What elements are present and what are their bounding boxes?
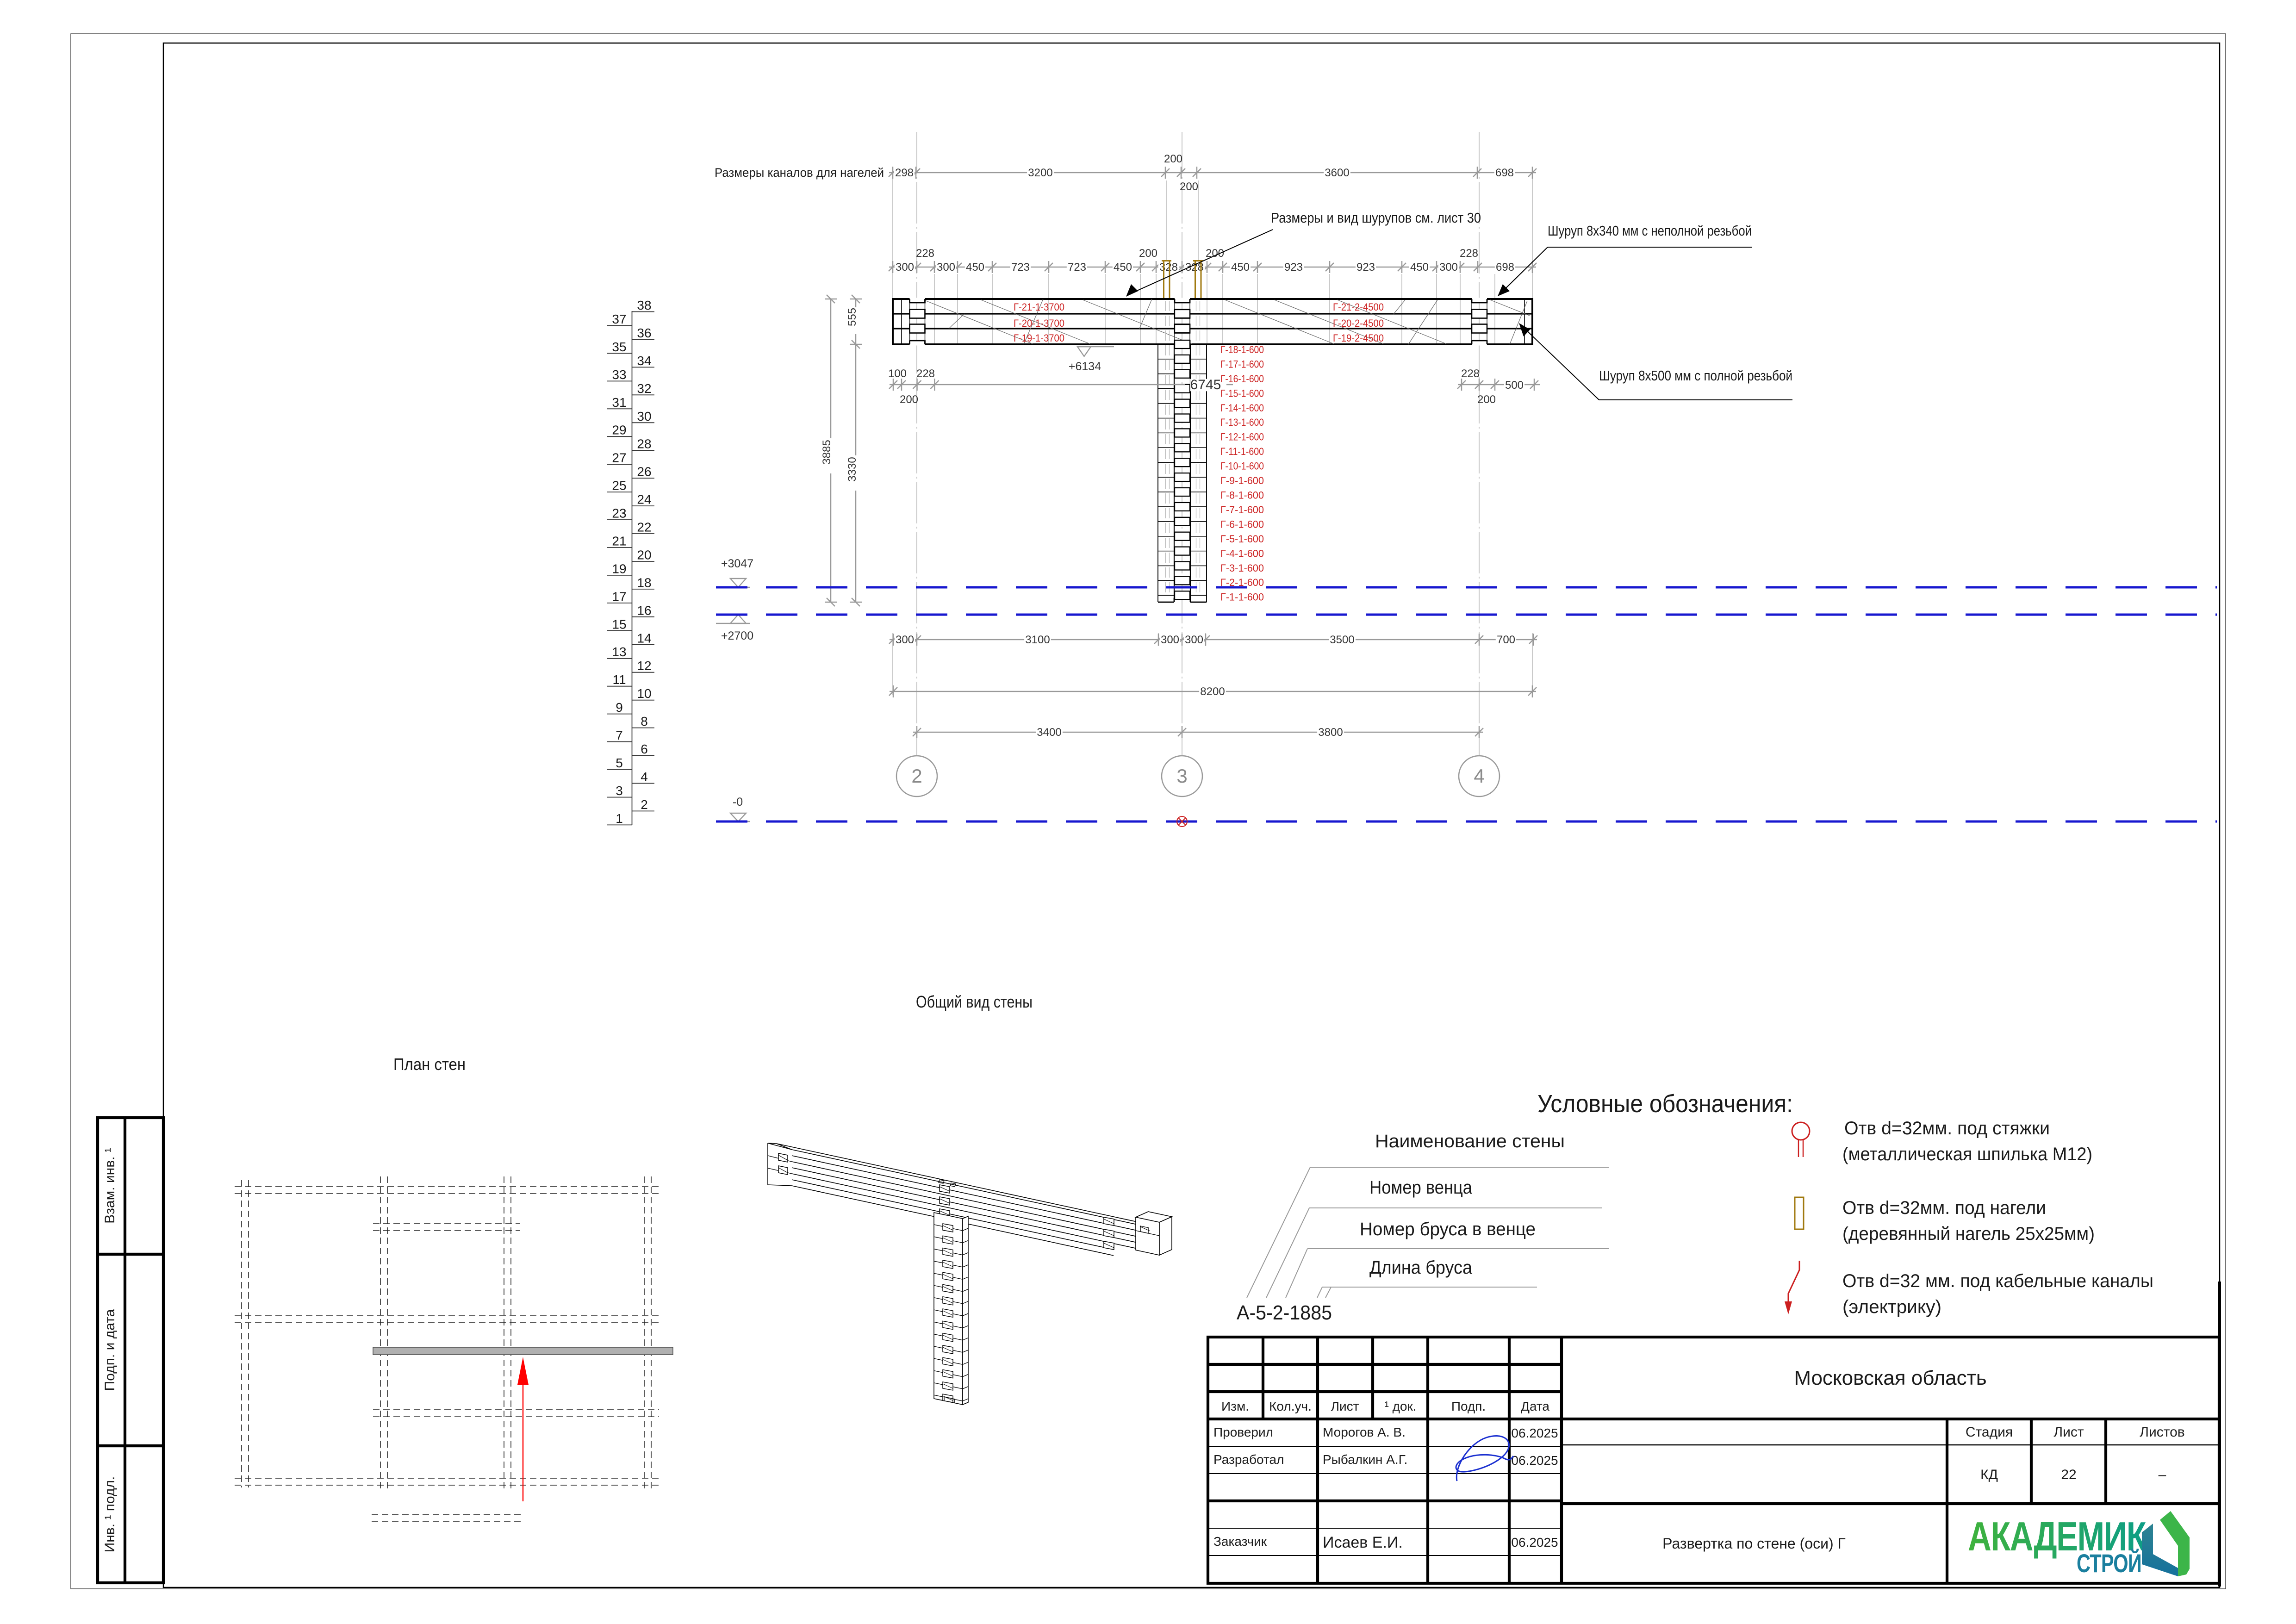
svg-text:Подп.: Подп. (1451, 1399, 1486, 1413)
svg-text:21: 21 (612, 534, 626, 548)
svg-text:2: 2 (911, 765, 922, 787)
svg-text:Наименование стены: Наименование стены (1375, 1131, 1565, 1151)
svg-text:План стен: План стен (393, 1055, 466, 1074)
svg-text:Общий вид стены: Общий вид стены (916, 992, 1033, 1011)
svg-text:Отв d=32 мм. под кабельные кан: Отв d=32 мм. под кабельные каналы (1842, 1271, 2153, 1291)
svg-text:700: 700 (1497, 634, 1515, 646)
svg-text:Номер бруса в венце: Номер бруса в венце (1360, 1219, 1536, 1239)
svg-text:Г-6-1-600: Г-6-1-600 (1220, 518, 1264, 530)
svg-text:450: 450 (966, 261, 984, 274)
svg-text:Отв d=32мм. под стяжки: Отв d=32мм. под стяжки (1844, 1118, 2050, 1139)
svg-text:6: 6 (641, 742, 648, 756)
svg-text:698: 698 (1495, 167, 1514, 179)
svg-text:228: 228 (916, 247, 934, 260)
svg-text:34: 34 (637, 354, 651, 368)
svg-text:723: 723 (1011, 261, 1030, 274)
svg-text:7: 7 (616, 728, 623, 742)
svg-text:+3047: +3047 (721, 557, 753, 570)
svg-text:298: 298 (895, 167, 914, 179)
svg-text:14: 14 (637, 631, 651, 645)
svg-text:Г-14-1-600: Г-14-1-600 (1220, 402, 1264, 414)
svg-text:4: 4 (1474, 765, 1484, 787)
svg-text:Исаев Е.И.: Исаев Е.И. (1323, 1534, 1403, 1551)
svg-text:3100: 3100 (1025, 634, 1050, 646)
svg-text:3400: 3400 (1037, 726, 1061, 739)
svg-text:Инв. ¹ подл.: Инв. ¹ подл. (102, 1476, 118, 1553)
svg-text:Размеры каналов для нагелей: Размеры каналов для нагелей (715, 166, 884, 180)
svg-text:18: 18 (637, 575, 651, 590)
svg-text:Г-11-1-600: Г-11-1-600 (1220, 446, 1264, 457)
svg-text:Кол.уч.: Кол.уч. (1269, 1399, 1312, 1413)
svg-text:+2700: +2700 (721, 629, 753, 642)
svg-text:Г-10-1-600: Г-10-1-600 (1220, 460, 1264, 472)
svg-text:-0: -0 (733, 796, 743, 809)
svg-text:Г-13-1-600: Г-13-1-600 (1220, 417, 1264, 428)
svg-text:228: 228 (916, 367, 935, 380)
svg-text:923: 923 (1284, 261, 1303, 274)
svg-text:200: 200 (1164, 153, 1182, 165)
svg-text:300: 300 (896, 634, 914, 646)
svg-text:698: 698 (1496, 261, 1514, 274)
svg-text:Дата: Дата (1521, 1399, 1549, 1413)
svg-text:200: 200 (900, 393, 918, 406)
svg-text:723: 723 (1068, 261, 1086, 274)
svg-text:33: 33 (612, 367, 626, 382)
svg-text:Отв d=32мм. под нагели: Отв d=32мм. под нагели (1842, 1198, 2046, 1218)
svg-text:2: 2 (641, 797, 648, 812)
svg-text:450: 450 (1231, 261, 1250, 274)
svg-text:4: 4 (641, 770, 648, 784)
svg-text:17: 17 (612, 589, 626, 604)
svg-text:24: 24 (637, 492, 651, 507)
svg-text:300: 300 (1161, 634, 1179, 646)
svg-text:31: 31 (612, 395, 626, 410)
svg-text:500: 500 (1505, 379, 1524, 392)
svg-text:Взам. инв. ¹: Взам. инв. ¹ (102, 1148, 118, 1224)
svg-text:¹ док.: ¹ док. (1384, 1399, 1416, 1413)
svg-text:555: 555 (846, 308, 859, 326)
svg-text:Г-4-1-600: Г-4-1-600 (1220, 548, 1264, 559)
svg-text:1: 1 (616, 811, 623, 826)
svg-text:Длина бруса: Длина бруса (1369, 1257, 1473, 1278)
svg-text:23: 23 (612, 506, 626, 521)
svg-text:Г-21-1-3700: Г-21-1-3700 (1014, 301, 1064, 313)
svg-text:3600: 3600 (1325, 167, 1349, 179)
svg-text:22: 22 (637, 520, 651, 535)
svg-text:3: 3 (616, 784, 623, 798)
svg-text:Стадия: Стадия (1966, 1425, 2013, 1440)
svg-text:Проверил: Проверил (1213, 1425, 1273, 1439)
svg-text:(электрику): (электрику) (1842, 1297, 1941, 1317)
svg-text:Г-17-1-600: Г-17-1-600 (1220, 359, 1264, 370)
svg-text:28: 28 (637, 437, 651, 451)
svg-text:Шуруп 8х500 мм с полной резьбо: Шуруп 8х500 мм с полной резьбой (1599, 367, 1792, 384)
svg-text:Г-15-1-600: Г-15-1-600 (1220, 387, 1264, 399)
svg-text:Г-19-2-4500: Г-19-2-4500 (1333, 332, 1384, 344)
svg-text:Размеры и вид шурупов см. лист: Размеры и вид шурупов см. лист 30 (1271, 210, 1481, 226)
svg-text:Г-3-1-600: Г-3-1-600 (1220, 562, 1264, 574)
svg-text:Морогов А. В.: Морогов А. В. (1323, 1425, 1406, 1439)
svg-text:Заказчик: Заказчик (1213, 1534, 1267, 1549)
svg-text:450: 450 (1114, 261, 1132, 274)
svg-text:36: 36 (637, 326, 651, 340)
svg-text:19: 19 (612, 561, 626, 576)
svg-text:3330: 3330 (846, 457, 859, 481)
svg-text:200: 200 (1206, 247, 1224, 260)
svg-text:Подп. и дата: Подп. и дата (102, 1309, 118, 1391)
svg-text:СТРОЙ: СТРОЙ (2077, 1549, 2141, 1578)
svg-text:КД: КД (1980, 1467, 1998, 1482)
svg-text:200: 200 (1477, 393, 1496, 406)
svg-text:100: 100 (888, 367, 907, 380)
svg-text:Г-12-1-600: Г-12-1-600 (1220, 431, 1264, 443)
svg-text:15: 15 (612, 617, 626, 631)
svg-text:Г-8-1-600: Г-8-1-600 (1220, 490, 1264, 501)
svg-text:Листов: Листов (2140, 1425, 2184, 1440)
svg-text:3800: 3800 (1318, 726, 1343, 739)
svg-text:Г-18-1-600: Г-18-1-600 (1220, 344, 1264, 355)
svg-text:Рыбалкин А.Г.: Рыбалкин А.Г. (1323, 1452, 1407, 1467)
svg-text:8: 8 (641, 714, 648, 728)
svg-text:29: 29 (612, 423, 626, 437)
svg-text:Г-16-1-600: Г-16-1-600 (1220, 373, 1264, 385)
svg-text:300: 300 (937, 261, 955, 274)
svg-text:Изм.: Изм. (1221, 1399, 1249, 1413)
svg-text:22: 22 (2061, 1467, 2076, 1482)
svg-text:20: 20 (637, 548, 651, 562)
svg-text:3200: 3200 (1028, 167, 1052, 179)
svg-text:(металлическая шпилька М12): (металлическая шпилька М12) (1842, 1144, 2092, 1164)
svg-text:27: 27 (612, 451, 626, 465)
svg-text:Номер венца: Номер венца (1369, 1177, 1473, 1198)
svg-text:06.2025: 06.2025 (1511, 1453, 1558, 1468)
svg-text:35: 35 (612, 340, 626, 354)
svg-text:Разработал: Разработал (1213, 1452, 1284, 1467)
svg-text:Г-20-2-4500: Г-20-2-4500 (1333, 317, 1384, 329)
svg-text:Г-1-1-600: Г-1-1-600 (1220, 591, 1264, 603)
svg-text:Лист: Лист (1331, 1399, 1359, 1413)
svg-text:06.2025: 06.2025 (1511, 1426, 1558, 1440)
svg-text:+6134: +6134 (1069, 360, 1101, 373)
svg-text:Г-7-1-600: Г-7-1-600 (1220, 504, 1264, 516)
svg-text:Условные обозначения:: Условные обозначения: (1537, 1090, 1793, 1118)
svg-text:Г-19-1-3700: Г-19-1-3700 (1014, 332, 1064, 344)
svg-text:32: 32 (637, 381, 651, 396)
svg-text:Г-5-1-600: Г-5-1-600 (1220, 533, 1264, 545)
svg-text:8200: 8200 (1200, 685, 1225, 698)
svg-text:9: 9 (616, 700, 623, 715)
svg-text:Шуруп 8х340 мм с неполной резь: Шуруп 8х340 мм с неполной резьбой (1548, 223, 1752, 239)
svg-text:А-5-2-1885: А-5-2-1885 (1237, 1301, 1332, 1324)
svg-text:Московская область: Московская область (1794, 1367, 1986, 1389)
svg-text:30: 30 (637, 409, 651, 423)
svg-text:Г-20-1-3700: Г-20-1-3700 (1014, 317, 1064, 329)
svg-text:Развертка по стене (оси) Г: Развертка по стене (оси) Г (1662, 1535, 1846, 1552)
svg-text:06.2025: 06.2025 (1511, 1535, 1558, 1549)
svg-text:16: 16 (637, 603, 651, 617)
svg-text:450: 450 (1410, 261, 1429, 274)
svg-text:300: 300 (896, 261, 914, 274)
svg-text:6745: 6745 (1190, 377, 1221, 392)
svg-text:26: 26 (637, 465, 651, 479)
svg-text:–: – (2159, 1467, 2166, 1482)
svg-text:228: 228 (1460, 247, 1478, 260)
svg-text:3500: 3500 (1330, 634, 1354, 646)
svg-text:37: 37 (612, 312, 626, 326)
svg-text:13: 13 (612, 645, 626, 659)
svg-text:38: 38 (637, 298, 651, 312)
svg-text:25: 25 (612, 479, 626, 493)
svg-text:3885: 3885 (821, 440, 833, 464)
svg-text:200: 200 (1139, 247, 1157, 260)
svg-text:300: 300 (1185, 634, 1203, 646)
svg-text:10: 10 (637, 686, 651, 701)
svg-text:923: 923 (1356, 261, 1375, 274)
svg-text:12: 12 (637, 659, 651, 673)
svg-text:11: 11 (612, 672, 626, 687)
svg-text:Лист: Лист (2053, 1425, 2084, 1440)
svg-text:300: 300 (1439, 261, 1458, 274)
svg-text:Г-9-1-600: Г-9-1-600 (1220, 475, 1264, 486)
svg-text:Г-21-2-4500: Г-21-2-4500 (1333, 301, 1384, 313)
svg-text:328: 328 (1159, 261, 1178, 274)
svg-text:3: 3 (1176, 765, 1187, 787)
svg-text:5: 5 (616, 756, 623, 770)
svg-text:228: 228 (1461, 367, 1480, 380)
svg-text:(деревянный нагель 25х25мм): (деревянный нагель 25х25мм) (1842, 1224, 2095, 1244)
svg-text:200: 200 (1180, 180, 1198, 193)
